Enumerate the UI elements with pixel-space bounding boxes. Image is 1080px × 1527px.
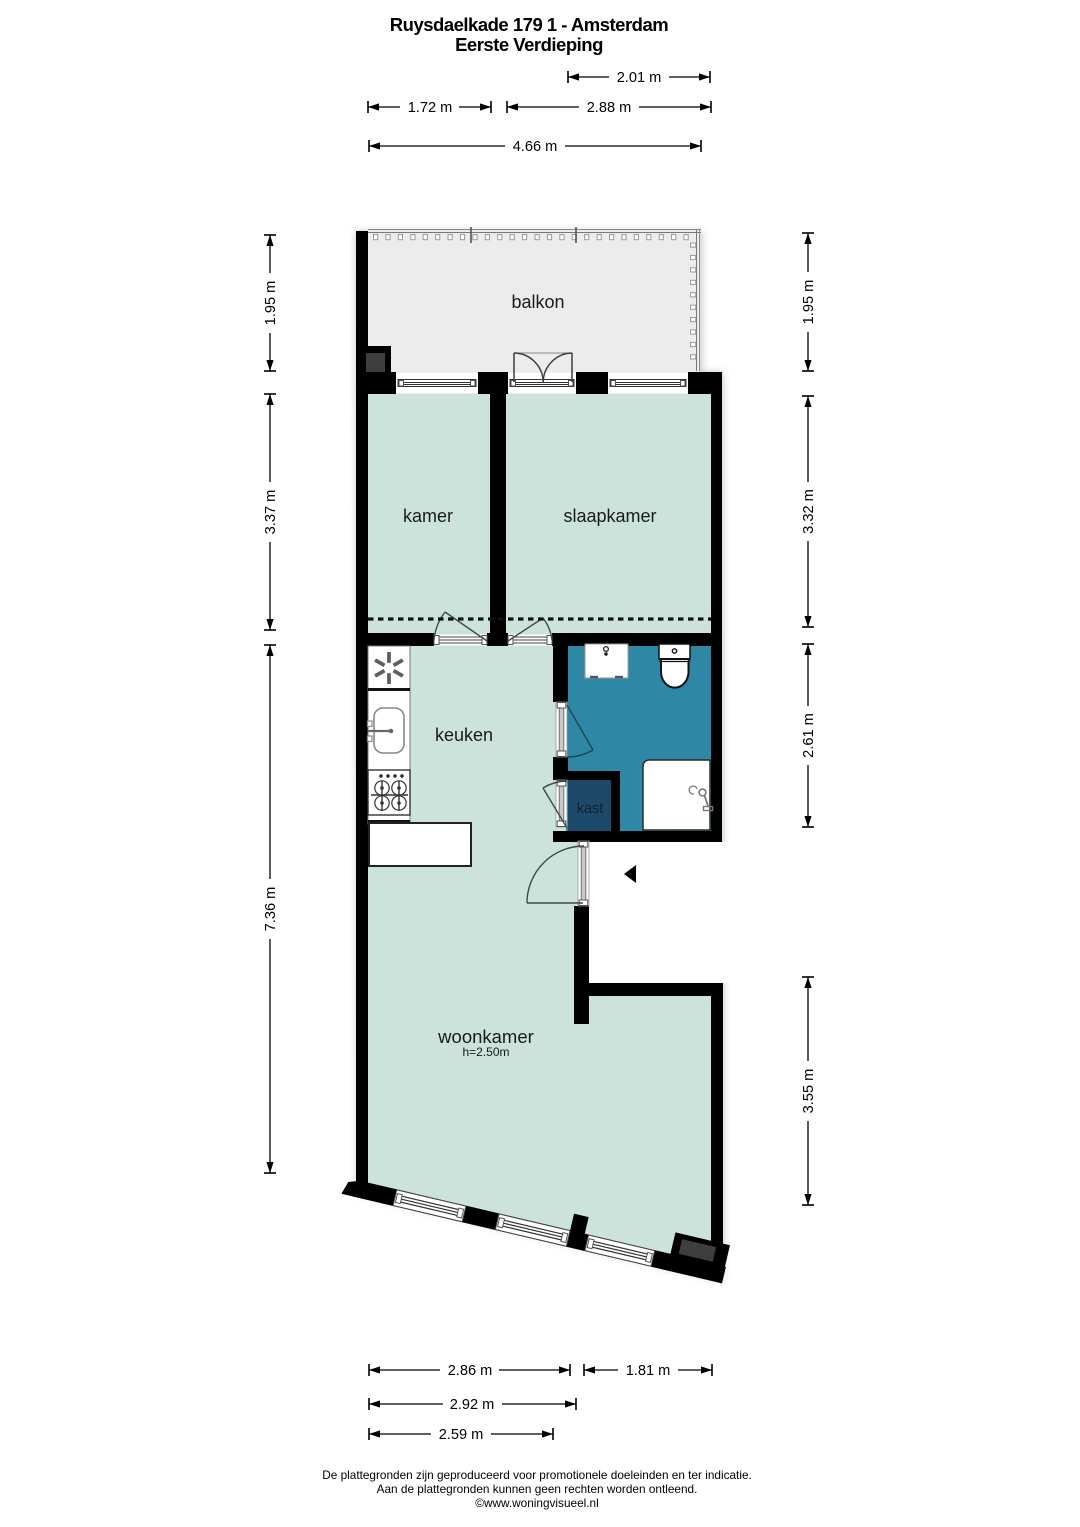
svg-text:1.95 m: 1.95 m bbox=[801, 280, 817, 325]
svg-text:kast: kast bbox=[577, 801, 604, 817]
svg-text:De plattegronden zijn geproduc: De plattegronden zijn geproduceerd voor … bbox=[322, 1468, 752, 1482]
svg-text:2.86 m: 2.86 m bbox=[448, 1363, 493, 1379]
svg-text:1.81 m: 1.81 m bbox=[626, 1363, 671, 1379]
svg-text:©www.woningvisueel.nl: ©www.woningvisueel.nl bbox=[475, 1496, 598, 1510]
svg-text:balkon: balkon bbox=[511, 292, 564, 312]
svg-text:2.01 m: 2.01 m bbox=[617, 70, 662, 86]
svg-text:Eerste Verdieping: Eerste Verdieping bbox=[455, 34, 603, 55]
svg-text:keuken: keuken bbox=[435, 725, 493, 745]
svg-text:slaapkamer: slaapkamer bbox=[563, 506, 656, 526]
svg-text:2.59 m: 2.59 m bbox=[439, 1427, 484, 1443]
svg-text:2.88 m: 2.88 m bbox=[587, 100, 632, 116]
svg-text:Aan de plattegronden kunnen ge: Aan de plattegronden kunnen geen rechten… bbox=[377, 1482, 698, 1496]
svg-text:1.72 m: 1.72 m bbox=[408, 100, 453, 116]
svg-text:7.36 m: 7.36 m bbox=[263, 887, 279, 932]
svg-text:kamer: kamer bbox=[403, 506, 453, 526]
svg-text:4.66 m: 4.66 m bbox=[513, 139, 558, 155]
svg-text:2.92 m: 2.92 m bbox=[450, 1397, 495, 1413]
svg-text:3.32 m: 3.32 m bbox=[801, 489, 817, 534]
svg-text:woonkamer: woonkamer bbox=[437, 1026, 534, 1047]
svg-text:1.95 m: 1.95 m bbox=[263, 281, 279, 326]
svg-text:Ruysdaelkade 179 1 - Amsterdam: Ruysdaelkade 179 1 - Amsterdam bbox=[390, 14, 668, 35]
svg-text:3.37 m: 3.37 m bbox=[263, 490, 279, 535]
svg-text:3.55 m: 3.55 m bbox=[801, 1069, 817, 1114]
svg-text:2.61 m: 2.61 m bbox=[801, 713, 817, 758]
svg-text:h=2.50m: h=2.50m bbox=[462, 1045, 509, 1059]
